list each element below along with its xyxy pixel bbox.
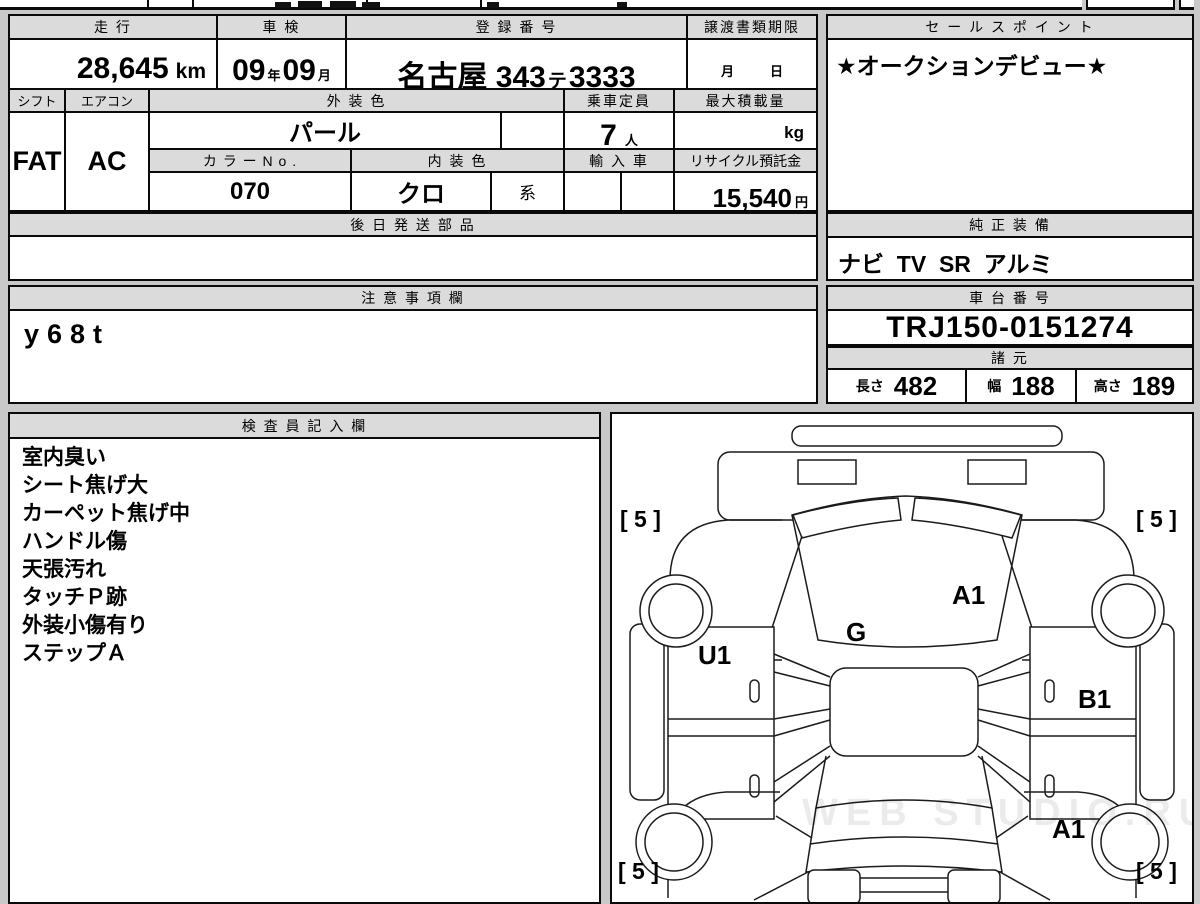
capacity-header: 乗車定員	[563, 88, 675, 113]
chassis-box: 車 台 番 号 TRJ150-0151274	[826, 285, 1194, 346]
shift-header: シフト	[8, 88, 66, 113]
car-diagram-box: WEB STUDIO.RU [ 5 ] [ 5 ] A1 G U1 B1 A1 …	[610, 412, 1194, 904]
deadline-day-unit: 日	[770, 61, 783, 80]
inspector-item: ハンドル傷	[22, 528, 587, 556]
spec-width-value: 188	[1011, 371, 1054, 402]
inspector-box: 検 査 員 記 入 欄 室内臭い シート焦げ大 カーペット焦げ中 ハンドル傷 天…	[8, 412, 601, 904]
spec-width-cell: 幅 188	[967, 370, 1077, 402]
damage-label-a1-front: A1	[952, 580, 985, 611]
auction-sheet: { "table": { "mileage": {"label": "走 行",…	[0, 0, 1200, 900]
watermark: WEB STUDIO.RU	[802, 792, 1194, 835]
spec-height-value: 189	[1132, 371, 1175, 402]
shaken-year-unit: 年	[267, 65, 280, 84]
later-parts-header: 後 日 発 送 部 品	[8, 212, 818, 237]
mileage-header: 走 行	[8, 14, 218, 40]
specs-header: 諸 元	[828, 348, 1192, 370]
import-car-empty-b	[620, 171, 675, 212]
damage-label-g: G	[846, 617, 866, 648]
color-no-value: 070	[148, 171, 352, 212]
shaken-month-unit: 月	[318, 65, 331, 84]
spec-height-cell: 高さ 189	[1077, 370, 1192, 402]
tire-grade-rear-right: [ 5 ]	[1136, 858, 1177, 885]
equipment-header: 純 正 装 備	[828, 214, 1192, 238]
interior-color-value: クロ	[350, 171, 492, 212]
mileage-value-cell: 28,645 km	[8, 38, 218, 90]
spec-length-value: 482	[894, 371, 937, 402]
interior-color-header: 内 装 色	[350, 148, 565, 173]
deadline-month-unit: 月	[721, 61, 734, 80]
mileage-value: 28,645	[77, 52, 169, 86]
inspector-item: 天張汚れ	[22, 556, 587, 584]
sales-point-header: セ ー ル ス ポ イ ン ト	[828, 16, 1192, 40]
aircon-value: AC	[64, 111, 150, 212]
recycle-unit: 円	[795, 192, 808, 211]
top-cutoff-row	[0, 0, 1082, 10]
spec-height-label: 高さ	[1094, 376, 1122, 396]
exterior-color-empty-cell	[500, 111, 565, 150]
specs-box: 諸 元 長さ 482 幅 188 高さ 189	[826, 346, 1194, 404]
chassis-header: 車 台 番 号	[828, 287, 1192, 311]
recycle-header: リサイクル預託金	[673, 148, 818, 173]
sales-point-box: セ ー ル ス ポ イ ン ト ★オークションデビュー★	[826, 14, 1194, 212]
spec-length-cell: 長さ 482	[828, 370, 967, 402]
shaken-month: 09	[283, 54, 316, 88]
shaken-year: 09	[232, 54, 265, 88]
interior-color-suffix-cell: 系	[490, 171, 565, 212]
shaken-header: 車 検	[216, 14, 347, 40]
later-parts-value	[8, 235, 818, 281]
spec-width-label: 幅	[987, 376, 1001, 396]
inspector-item: 室内臭い	[22, 444, 587, 472]
inspector-item: 外装小傷有り	[22, 612, 587, 640]
max-load-header: 最大積載量	[673, 88, 818, 113]
mileage-unit: km	[176, 60, 206, 84]
deadline-header: 譲渡書類期限	[686, 14, 818, 40]
capacity-value-cell: 7 人	[563, 111, 675, 150]
recycle-value-cell: 15,540 円	[673, 171, 818, 212]
sales-point-value: ★オークションデビュー★	[828, 40, 1192, 88]
inspector-header: 検 査 員 記 入 欄	[10, 414, 599, 439]
exterior-color-header: 外 装 色	[148, 88, 565, 113]
import-car-empty-a	[563, 171, 622, 212]
shaken-value-cell: 09 年 09 月	[216, 38, 347, 90]
tire-grade-rear-left: [ 5 ]	[618, 858, 659, 885]
inspector-item: ステップＡ	[22, 640, 587, 668]
notes-header: 注 意 事 項 欄	[10, 287, 816, 311]
top-cutoff-cell-a	[1086, 0, 1175, 10]
capacity-unit: 人	[625, 130, 638, 149]
registration-value-cell: 名古屋 343 テ 3333	[345, 38, 688, 90]
max-load-unit: kg	[784, 123, 804, 143]
tire-grade-front-right: [ 5 ]	[1136, 506, 1177, 533]
equipment-box: 純 正 装 備 ナビ TV SR アルミ	[826, 212, 1194, 281]
equipment-value: ナビ TV SR アルミ	[828, 238, 1192, 286]
spec-length-label: 長さ	[856, 376, 884, 396]
inspector-item: カーペット焦げ中	[22, 500, 587, 528]
exterior-color-value: パール	[148, 111, 502, 150]
deadline-value-cell: 月 日	[686, 38, 818, 90]
top-cutoff-cell-b	[1179, 0, 1194, 10]
notes-value: y68t	[10, 311, 816, 358]
registration-header: 登 録 番 号	[345, 14, 688, 40]
notes-box: 注 意 事 項 欄 y68t	[8, 285, 818, 404]
inspector-item: シート焦げ大	[22, 472, 587, 500]
max-load-value-cell: kg	[673, 111, 818, 150]
inspector-item: タッチＰ跡	[22, 584, 587, 612]
tire-grade-front-left: [ 5 ]	[620, 506, 661, 533]
color-no-header: カ ラ ー N o .	[148, 148, 352, 173]
recycle-value: 15,540	[712, 183, 792, 214]
import-car-header: 輸 入 車	[563, 148, 675, 173]
shift-value: FAT	[8, 111, 66, 212]
damage-label-a1-rear: A1	[1052, 814, 1085, 845]
interior-color-suffix: 系	[519, 179, 536, 204]
aircon-header: エアコン	[64, 88, 150, 113]
inspector-items: 室内臭い シート焦げ大 カーペット焦げ中 ハンドル傷 天張汚れ タッチＰ跡 外装…	[10, 439, 599, 668]
damage-label-u1: U1	[698, 640, 731, 671]
damage-label-b1: B1	[1078, 684, 1111, 715]
chassis-value: TRJ150-0151274	[828, 311, 1192, 344]
